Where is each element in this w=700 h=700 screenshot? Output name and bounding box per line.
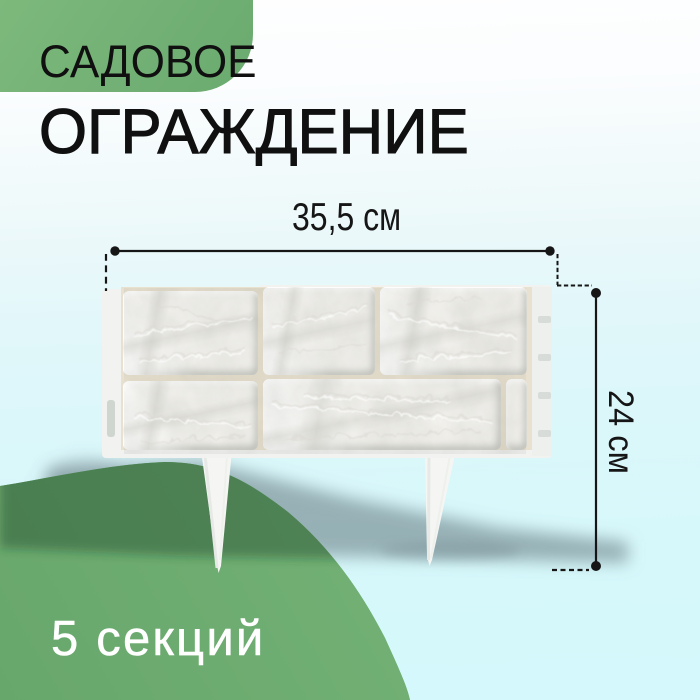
svg-text:24 см: 24 см xyxy=(601,390,640,474)
